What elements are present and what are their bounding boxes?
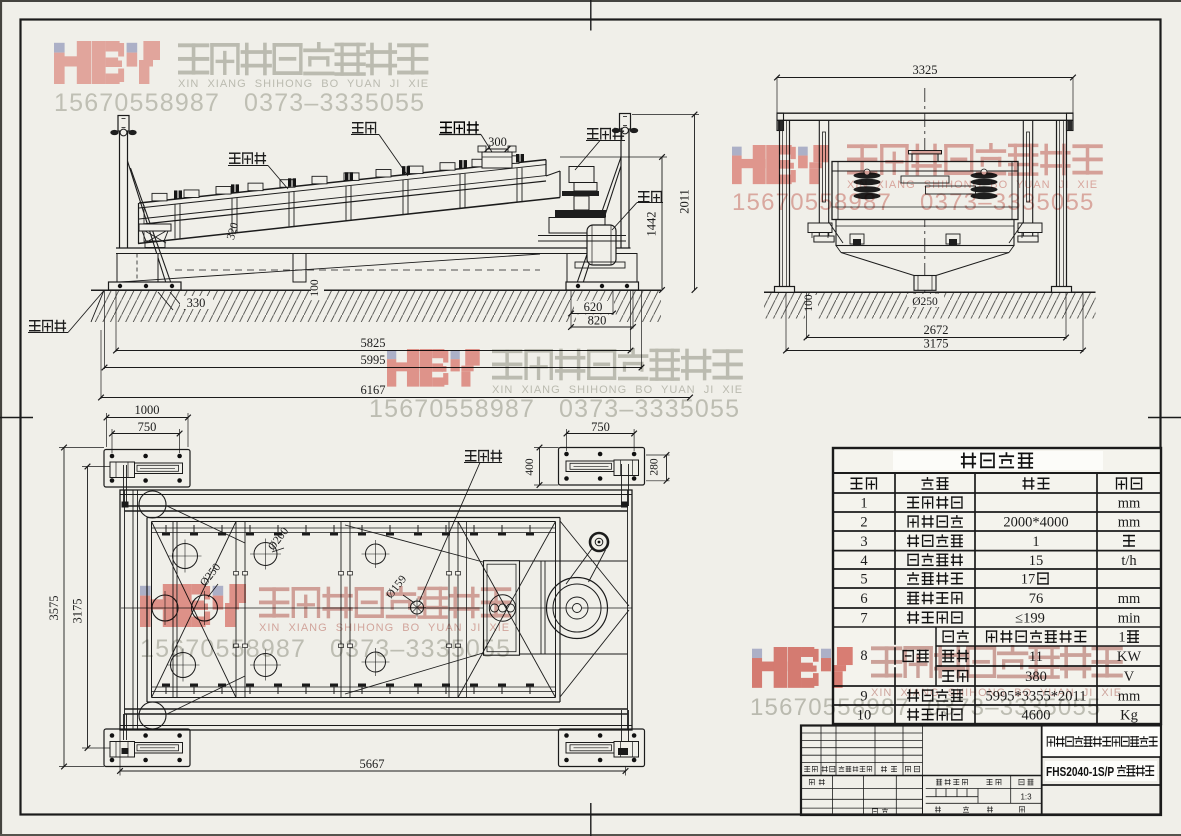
svg-text:750: 750: [138, 420, 157, 434]
svg-text:1000: 1000: [135, 403, 160, 417]
svg-text:1: 1: [860, 496, 867, 512]
svg-text:Kg: Kg: [1120, 708, 1138, 724]
svg-text:1:3: 1:3: [1020, 793, 1032, 802]
svg-text:3325: 3325: [913, 63, 938, 77]
svg-text:330: 330: [187, 296, 206, 310]
svg-text:mm: mm: [1118, 496, 1141, 512]
svg-text:17: 17: [1021, 572, 1036, 588]
svg-text:15: 15: [1029, 553, 1044, 569]
svg-text:2011: 2011: [678, 189, 692, 214]
svg-text:3175: 3175: [71, 599, 85, 624]
svg-text:t/h: t/h: [1121, 553, 1137, 569]
svg-text:3: 3: [860, 534, 867, 550]
svg-text:1442: 1442: [645, 212, 659, 237]
svg-text:820: 820: [588, 314, 607, 328]
svg-text:8: 8: [860, 648, 867, 664]
svg-text:5995: 5995: [361, 353, 386, 367]
svg-text:2000*4000: 2000*4000: [1003, 515, 1068, 531]
svg-text:6: 6: [860, 591, 867, 607]
svg-text:7: 7: [860, 611, 867, 627]
svg-text:5825: 5825: [361, 336, 386, 350]
svg-text:4: 4: [860, 553, 868, 569]
svg-text:3175: 3175: [924, 337, 949, 351]
svg-text:mm: mm: [1118, 591, 1141, 607]
svg-text:5: 5: [860, 572, 867, 588]
svg-text:min: min: [1118, 611, 1141, 627]
svg-text:V: V: [1124, 669, 1135, 685]
svg-text:100: 100: [309, 279, 321, 297]
svg-text:Ø250: Ø250: [912, 296, 938, 308]
svg-text:2: 2: [860, 515, 867, 531]
svg-text:5667: 5667: [360, 757, 385, 771]
svg-text:620: 620: [584, 300, 603, 314]
svg-text:mm: mm: [1118, 515, 1141, 531]
svg-text:76: 76: [1029, 591, 1044, 607]
svg-text:≤199: ≤199: [1015, 611, 1045, 627]
svg-text:1: 1: [1032, 534, 1039, 550]
svg-text:3575: 3575: [47, 596, 61, 621]
svg-text:280: 280: [649, 458, 661, 476]
svg-text:400: 400: [524, 458, 536, 476]
svg-text:2672: 2672: [924, 323, 949, 337]
svg-text:1: 1: [1118, 630, 1125, 646]
svg-text:100: 100: [803, 294, 815, 312]
svg-text:300: 300: [488, 135, 507, 149]
